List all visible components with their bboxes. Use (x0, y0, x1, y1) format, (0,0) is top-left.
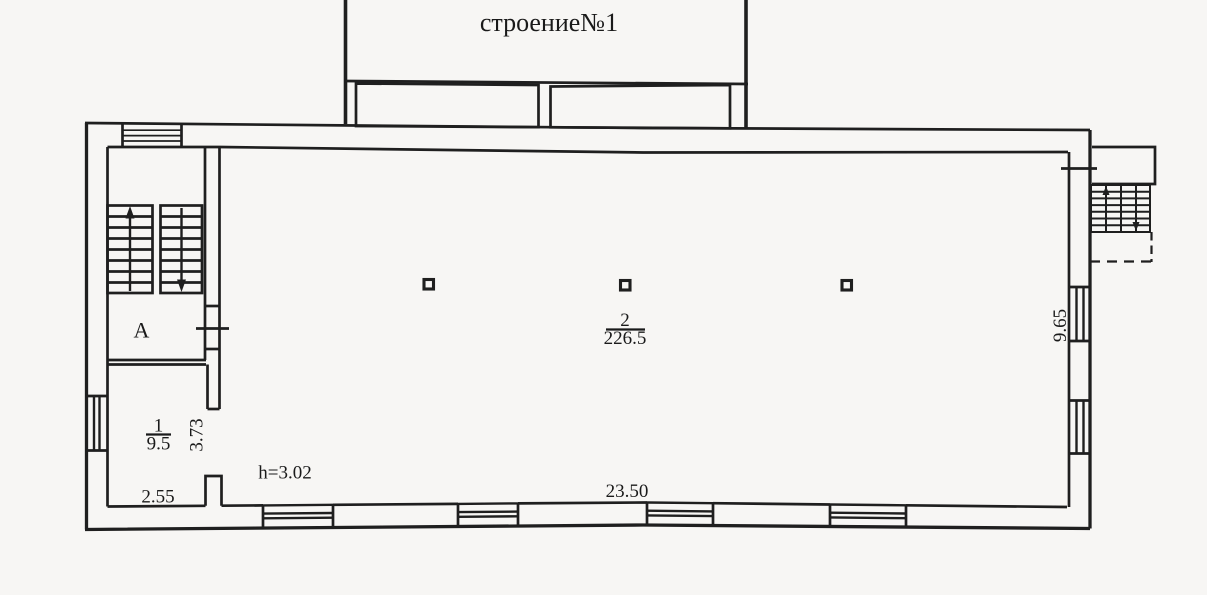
svg-text:226.5: 226.5 (604, 328, 647, 349)
svg-text:2.55: 2.55 (141, 487, 174, 508)
svg-text:9.65: 9.65 (1050, 309, 1071, 342)
svg-text:h=3.02: h=3.02 (258, 463, 311, 484)
svg-text:А: А (134, 318, 150, 343)
svg-text:3.73: 3.73 (187, 418, 208, 451)
svg-text:23.50: 23.50 (606, 481, 649, 502)
svg-text:строение№1: строение№1 (480, 8, 618, 37)
svg-text:9.5: 9.5 (147, 434, 171, 455)
